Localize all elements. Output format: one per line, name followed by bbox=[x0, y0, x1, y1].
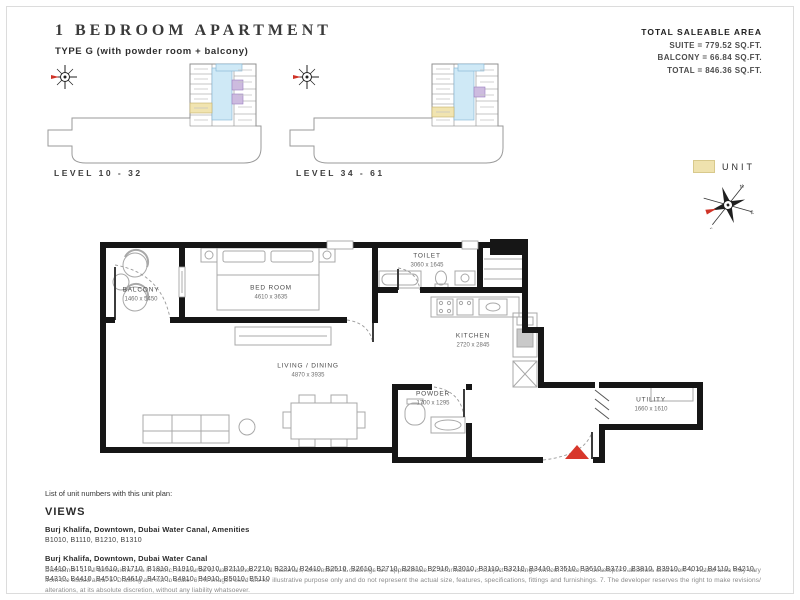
room-label-utility: UTILITY 1660 x 1610 bbox=[634, 397, 667, 414]
svg-text:N: N bbox=[739, 183, 745, 190]
legend: UNIT N E S bbox=[693, 160, 773, 234]
floor-plan-drawing bbox=[95, 235, 715, 470]
level-label: LEVEL 34 - 61 bbox=[296, 168, 385, 178]
balcony-chair bbox=[123, 253, 147, 277]
dining-table bbox=[291, 403, 357, 439]
coffee-table bbox=[239, 419, 255, 435]
compass-icon bbox=[292, 62, 322, 92]
other-unit-highlight bbox=[474, 87, 485, 97]
sofa bbox=[143, 415, 229, 443]
other-unit-highlight bbox=[232, 80, 243, 90]
entrance-marker-icon bbox=[565, 445, 589, 459]
compass-icon bbox=[50, 62, 80, 92]
saleable-area-block: TOTAL SALEABLE AREA SUITE = 779.52 SQ.FT… bbox=[641, 26, 762, 78]
page-title: 1 BEDROOM APARTMENT bbox=[55, 22, 332, 40]
view-units: B1010, B1110, B1210, B1310 bbox=[45, 536, 759, 547]
svg-text:E: E bbox=[750, 209, 755, 216]
nightstand bbox=[201, 248, 217, 262]
header-left: 1 BEDROOM APARTMENT TYPE G (with powder … bbox=[55, 22, 332, 57]
room-label-powder: POWDER 1700 x 1295 bbox=[416, 391, 450, 408]
room-label-toilet: TOILET 3060 x 1645 bbox=[410, 253, 443, 270]
key-plan-level-10-32: LEVEL 10 - 32 bbox=[40, 60, 270, 180]
kitchen-counter bbox=[431, 297, 519, 317]
level-label: LEVEL 10 - 32 bbox=[54, 168, 143, 178]
wc bbox=[436, 271, 447, 285]
toilet-vanity bbox=[455, 271, 475, 285]
area-total: TOTAL = 846.36 SQ.FT. bbox=[641, 65, 762, 78]
view-name: Burj Khalifa, Downtown, Dubai Water Cana… bbox=[45, 525, 759, 534]
core-highlight bbox=[454, 68, 474, 120]
room-label-balcony: BALCONY 1460 x 5450 bbox=[123, 287, 160, 304]
unit-list-intro: List of unit numbers with this unit plan… bbox=[45, 489, 759, 498]
room-label-bedroom: BED ROOM 4610 x 3635 bbox=[250, 285, 292, 302]
area-heading: TOTAL SALEABLE AREA bbox=[641, 26, 762, 40]
svg-text:S: S bbox=[709, 227, 715, 229]
bedroom-window bbox=[327, 241, 353, 249]
bedroom-door-arc bbox=[347, 320, 373, 343]
core-highlight bbox=[212, 68, 232, 120]
room-label-living-dining: LIVING / DINING 4870 x 3935 bbox=[277, 363, 338, 380]
powder-basin bbox=[431, 417, 465, 433]
disclaimer-text: Disclaimer: 1. All dimensions are in met… bbox=[45, 566, 761, 596]
area-suite: SUITE = 779.52 SQ.FT. bbox=[641, 40, 762, 53]
room-label-kitchen: KITCHEN 2720 x 2845 bbox=[456, 333, 490, 350]
compass-rose-icon: N E S bbox=[701, 181, 755, 229]
unit-color-swatch bbox=[693, 160, 715, 173]
view-group-1: Burj Khalifa, Downtown, Dubai Water Cana… bbox=[45, 525, 759, 547]
nightstand bbox=[319, 248, 335, 262]
area-balcony: BALCONY = 66.84 SQ.FT. bbox=[641, 52, 762, 65]
views-heading: VIEWS bbox=[45, 506, 759, 518]
view-name: Burj Khalifa, Downtown, Dubai Water Cana… bbox=[45, 554, 759, 563]
page-subtitle: TYPE G (with powder room + balcony) bbox=[55, 46, 332, 57]
toilet-window bbox=[462, 241, 478, 249]
key-plan-level-34-61: LEVEL 34 - 61 bbox=[282, 60, 512, 180]
unit-legend-label: UNIT bbox=[722, 162, 755, 172]
floor-plan: BALCONY 1460 x 5450 BED ROOM 4610 x 3635… bbox=[95, 235, 715, 470]
